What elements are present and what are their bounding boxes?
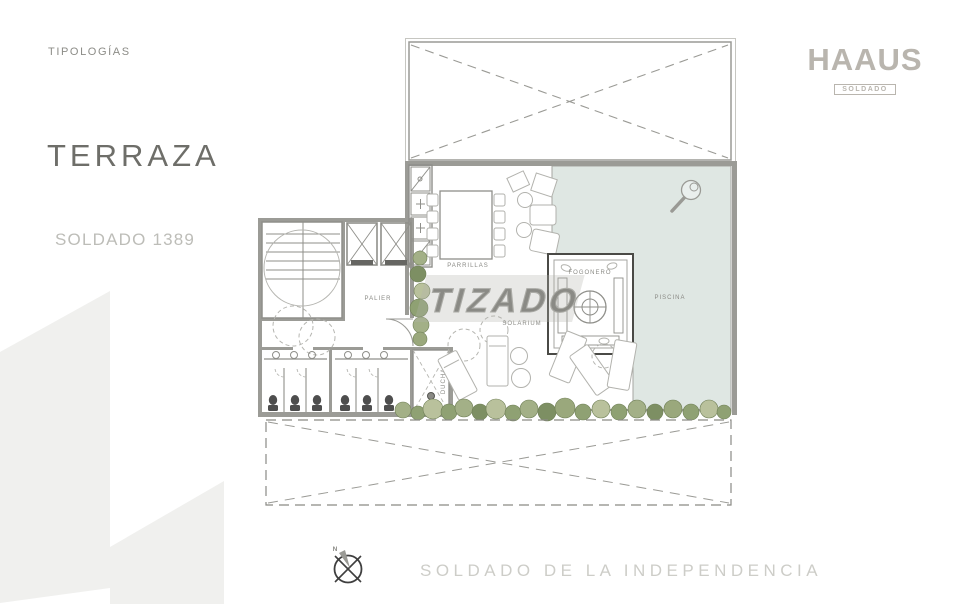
compass-north-label: N: [333, 546, 338, 553]
bathrooms: [264, 352, 408, 413]
dining-set: [427, 191, 505, 259]
watermark: TIZADO: [414, 275, 587, 322]
roof-void-top: [406, 39, 736, 164]
decorative-shapes: [0, 291, 224, 604]
page: TIPOLOGÍAS TERRAZA SOLDADO 1389 HAAUS SO…: [0, 0, 967, 604]
elevators: [347, 223, 411, 265]
label-piscina: PISCINA: [654, 295, 685, 301]
lounge-set: [507, 171, 560, 256]
label-parrillas: PARRILLAS: [447, 263, 489, 269]
lower-void-area: [266, 420, 731, 505]
label-palier: PALIER: [365, 296, 392, 302]
watermark-text: TIZADO: [425, 283, 586, 320]
floor-plan-svg: DUCHA: [0, 0, 967, 604]
stairwell: [262, 222, 342, 318]
compass-icon: N: [333, 546, 362, 583]
